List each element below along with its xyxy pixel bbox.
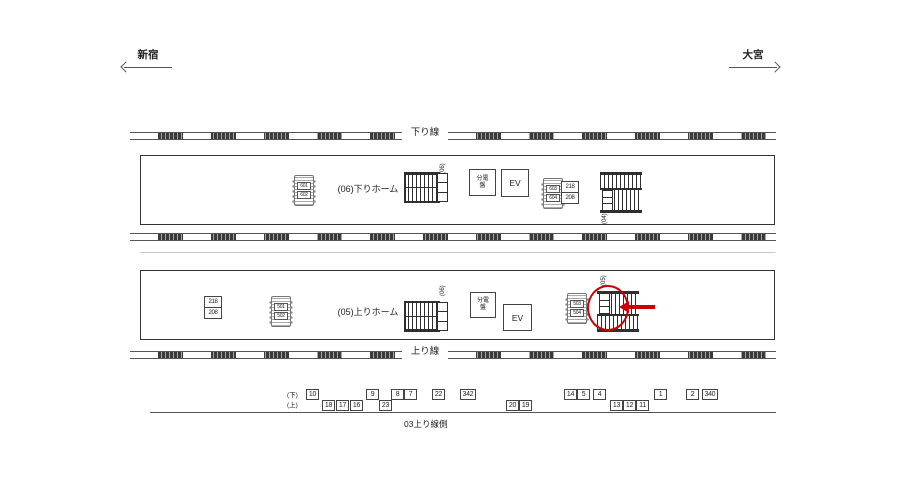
- ad-position-504: 504: [570, 309, 584, 317]
- direction-shinjuku: 新宿: [124, 47, 172, 68]
- ad-position-208: 208: [205, 308, 221, 318]
- distribution-panel-label: 分電盤: [475, 176, 490, 190]
- ad-position-box-22: 22: [432, 389, 445, 400]
- ad-position-box-19: 19: [519, 400, 532, 411]
- stairs-icon-platform06-right: [600, 172, 642, 216]
- up-line-side-baseline: [150, 412, 776, 413]
- stair-label-06: (06): [440, 163, 446, 174]
- bench-icon-503-504: 503 504: [567, 293, 587, 324]
- ad-position-box-10: 10: [306, 389, 319, 400]
- ad-position-box-17: 17: [336, 400, 349, 411]
- platform-05-up: [140, 270, 775, 340]
- ad-position-218: 218: [205, 297, 221, 308]
- ad-position-box-11: 11: [636, 400, 649, 411]
- down-line-track: [130, 132, 776, 140]
- down-line-label: 下り線: [402, 126, 448, 140]
- distribution-panel-box: 分電盤: [470, 292, 496, 318]
- sign-box-218-208-up: 218 208: [204, 296, 222, 319]
- ad-position-603: 603: [546, 185, 560, 193]
- bench-icon-501-502: 501 502: [271, 296, 291, 327]
- ad-position-box-2: 2: [686, 389, 699, 400]
- ad-position-601: 601: [297, 182, 311, 190]
- row-up-tag: (上): [287, 399, 298, 409]
- elevator-label: EV: [509, 178, 520, 188]
- ad-position-box-8: 8: [391, 389, 404, 400]
- middle-track: [130, 233, 776, 241]
- row-down-tag: (下): [287, 389, 298, 399]
- ad-position-503: 503: [570, 300, 584, 308]
- ad-position-box-23: 23: [379, 400, 392, 411]
- stairs-icon-platform05-left: [404, 296, 450, 336]
- ad-position-502: 502: [274, 312, 288, 320]
- right-arrow-icon: [729, 63, 777, 68]
- escalator-icon: [602, 190, 613, 211]
- platform-06-name: (06)下りホーム: [328, 182, 408, 195]
- left-arrow-icon: [124, 63, 172, 68]
- station-platform-diagram: 新宿 大宮 下り線 (06)下りホーム 601 602 (06) 分電盤 EV …: [0, 0, 919, 491]
- ad-position-box-5: 5: [577, 389, 590, 400]
- ad-position-box-7: 7: [404, 389, 417, 400]
- up-line-track: [130, 351, 776, 359]
- middle-track-line: [140, 252, 775, 253]
- ad-position-208: 208: [562, 193, 578, 203]
- elevator-box: EV: [503, 304, 532, 331]
- platform-05-name: (05)上りホーム: [328, 305, 408, 318]
- escalator-icon: [437, 302, 448, 331]
- ad-position-box-1: 1: [654, 389, 667, 400]
- ad-position-box-340: 340: [702, 389, 718, 400]
- ad-position-box-18: 18: [322, 400, 335, 411]
- ad-position-box-20: 20: [506, 400, 519, 411]
- bench-icon-603-604: 603 604: [543, 178, 563, 209]
- baseline-label: 03上り線側: [404, 418, 447, 430]
- highlight-arrow-line: [628, 305, 655, 309]
- up-line-label: 上り線: [402, 345, 448, 359]
- right-station-label: 大宮: [743, 49, 764, 61]
- distribution-panel-label: 分電盤: [476, 298, 491, 312]
- ad-position-box-13: 13: [610, 400, 623, 411]
- ad-position-604: 604: [546, 194, 560, 202]
- bench-icon-601-602: 601 602: [294, 175, 314, 206]
- ad-position-box-16: 16: [350, 400, 363, 411]
- sign-box-218-208-down: 218 208: [561, 181, 579, 204]
- elevator-box: EV: [501, 169, 529, 197]
- platform-06-down: [140, 155, 775, 225]
- stair-label-06-up: (06): [440, 285, 446, 296]
- ad-position-218: 218: [562, 182, 578, 193]
- ad-position-box-4: 4: [593, 389, 606, 400]
- ad-position-box-342: 342: [460, 389, 476, 400]
- left-station-label: 新宿: [138, 49, 159, 61]
- direction-omiya: 大宮: [729, 47, 777, 68]
- stairs-icon-platform06-left: [404, 168, 450, 208]
- stair-label-04: (04): [602, 213, 608, 224]
- ad-position-box-9: 9: [366, 389, 379, 400]
- elevator-label: EV: [512, 313, 523, 323]
- ad-position-box-14: 14: [564, 389, 577, 400]
- ad-position-602: 602: [297, 191, 311, 199]
- ad-position-box-12: 12: [623, 400, 636, 411]
- distribution-panel-box: 分電盤: [469, 169, 496, 196]
- ad-position-501: 501: [274, 303, 288, 311]
- escalator-icon: [437, 173, 448, 202]
